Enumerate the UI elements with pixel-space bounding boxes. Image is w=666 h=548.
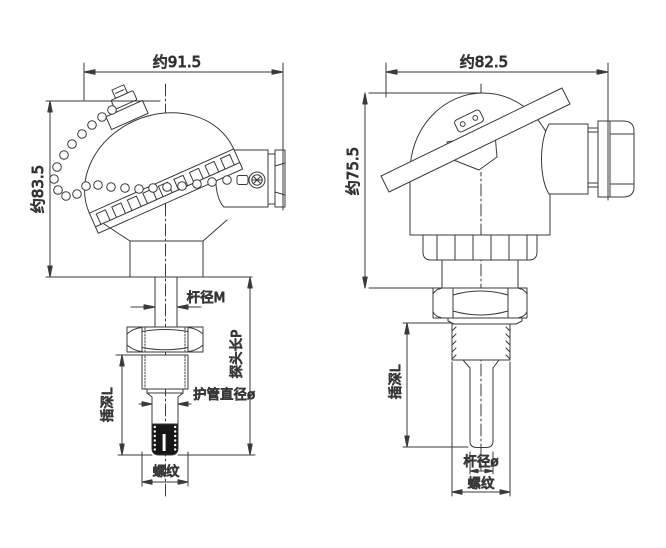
right-height-dimension-label: 约75.5: [344, 147, 362, 195]
left-height-dimension-label: 约83.5: [29, 165, 47, 213]
left-hex-nut: [127, 327, 203, 352]
right-view-thermocouple-assembly: 约82.5 约75.5 插深L 杆径ø: [344, 53, 634, 496]
left-view-thermocouple-assembly: 约91.5 约83.5 杆径M 插深L: [29, 53, 285, 497]
right-thread-bushing: [448, 318, 522, 368]
right-insertion-depth-label: 插深L: [388, 364, 404, 399]
right-flange: [423, 235, 537, 260]
left-insertion-depth-label: 插深L: [100, 387, 116, 422]
right-hex-nut: [433, 288, 527, 318]
left-width-dimension-label: 约91.5: [153, 53, 201, 71]
left-probe-length-label: 探头长P: [229, 330, 245, 379]
right-cable-gland: [542, 121, 635, 197]
left-thread-label: 螺纹: [153, 464, 180, 480]
right-stem-diameter-label: 杆径ø: [463, 454, 498, 470]
right-stem: [442, 260, 518, 288]
left-head-cap: [63, 89, 243, 234]
left-sheath-diameter-label: 护管直径ø: [193, 387, 255, 403]
right-width-dimension-label: 约82.5: [460, 53, 508, 71]
technical-drawing: 约91.5 约83.5 杆径M 插深L: [0, 0, 666, 548]
left-stem-diameter-label: 杆径M: [187, 290, 226, 306]
right-thread-label: 螺纹: [468, 476, 495, 492]
drawing-canvas: 约91.5 约83.5 杆径M 插深L: [0, 0, 666, 548]
